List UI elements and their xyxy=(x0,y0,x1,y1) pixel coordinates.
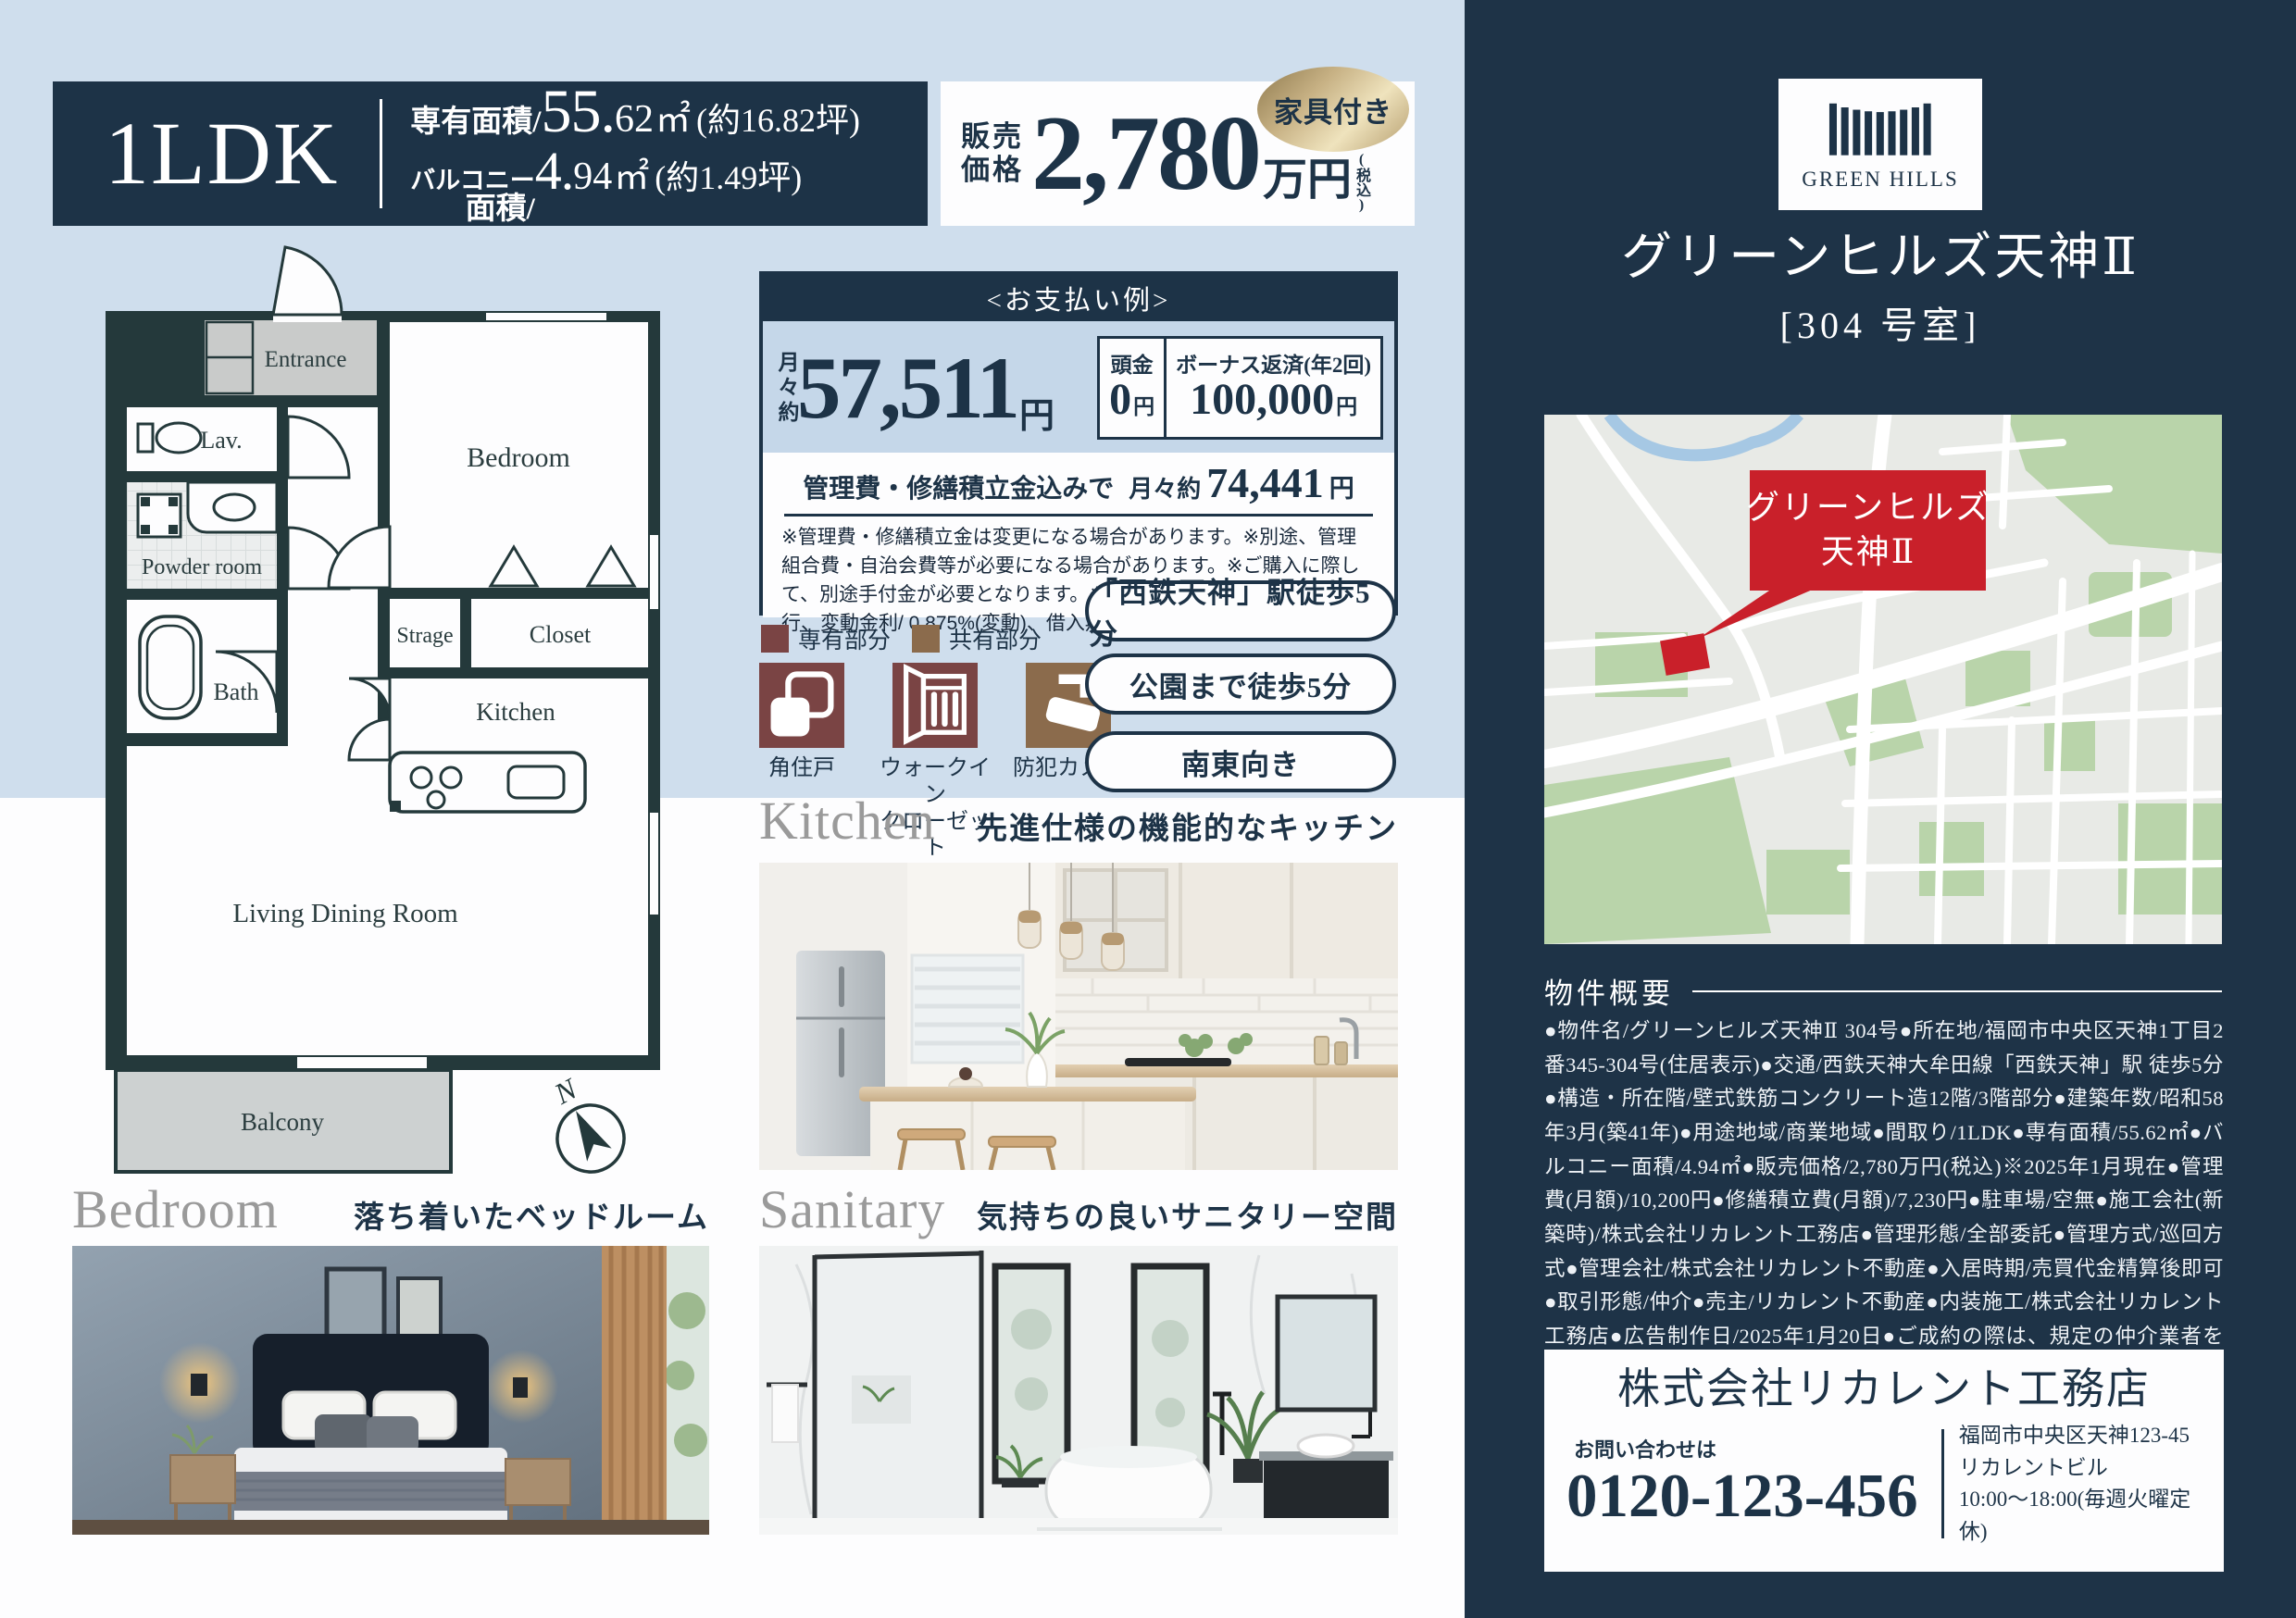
furnished-badge: 家具付き xyxy=(1257,67,1409,152)
bedroom-heading-ja: 落ち着いたベッドルーム xyxy=(354,1192,709,1237)
logo-text: GREEN HILLS xyxy=(1802,168,1959,192)
sidebar: GREEN HILLS グリーンヒルズ天神Ⅱ [304 号室] xyxy=(1465,0,2296,1618)
bedroom-heading: Bedroom 落ち着いたベッドルーム xyxy=(72,1183,709,1237)
sanitary-heading-ja: 気持ちの良いサニタリー空間 xyxy=(977,1192,1398,1237)
incl-rule xyxy=(784,514,1373,517)
company-name: 株式会社リカレント工務店 xyxy=(1544,1368,2224,1411)
price-unit: 万円 xyxy=(1263,143,1352,207)
incl-label: 管理費・修繕積立金込みで xyxy=(803,477,1114,503)
monthly-value: 57,511 xyxy=(797,344,1017,432)
bedroom-photo xyxy=(72,1246,709,1535)
incl-prefix: 月々約 xyxy=(1129,478,1201,502)
contact-divider xyxy=(1941,1429,1944,1538)
sanitary-heading: Sanitary 気持ちの良いサニタリー空間 xyxy=(759,1183,1398,1237)
overview-title: 物件概要 xyxy=(1544,970,1674,1012)
balcony-unit: ㎡ xyxy=(614,160,649,195)
brand-logo: GREEN HILLS xyxy=(1778,79,1982,210)
payment-example-box: <お支払い例> 月々約 57,511 円 頭金 0 円 ボーナス返済(年2回) … xyxy=(759,271,1398,616)
monthly-prefix: 月々約 xyxy=(776,351,797,426)
real-estate-flyer: 1LDK 専有面積/ 55. 62 ㎡ (約16.82坪) バルコニー 面積/ … xyxy=(0,0,2296,1618)
inquiry-label: お問い合わせは xyxy=(1574,1440,1938,1461)
badge-station: 「西鉄天神」駅徒歩5分 xyxy=(1085,580,1396,641)
kitchen-heading-ja: 先進仕様の機能的なキッチン xyxy=(977,803,1398,848)
overview-heading: 物件概要 xyxy=(1544,970,2222,1012)
sanitary-photo xyxy=(759,1246,1398,1535)
plan-type: 1LDK xyxy=(105,109,339,198)
exclusive-color-swatch xyxy=(761,625,789,653)
bedroom-heading-en: Bedroom xyxy=(72,1183,279,1237)
area-unit: ㎡ xyxy=(655,103,691,138)
downpayment-value: 0 xyxy=(1109,378,1131,422)
price-value: 2,780 xyxy=(1031,100,1259,207)
kitchen-heading: Kitchen 先進仕様の機能的なキッチン xyxy=(759,794,1398,848)
bonus-value: 100,000 xyxy=(1190,378,1334,422)
map-callout-line2: 天神Ⅱ xyxy=(1821,533,1915,570)
balcony-int: 4. xyxy=(535,144,574,198)
balcony-label-1: バルコニー xyxy=(410,168,534,193)
balcony-dec: 94 xyxy=(573,157,612,196)
area-int: 55. xyxy=(541,81,615,143)
badge-park: 公園まで徒歩5分 xyxy=(1085,653,1396,715)
room-number: [304 号室] xyxy=(1465,307,2296,344)
building-title: グリーンヒルズ天神Ⅱ xyxy=(1465,231,2296,282)
downpayment-bonus-box: 頭金 0 円 ボーナス返済(年2回) 100,000 円 xyxy=(1097,336,1383,440)
location-map: グリーンヒルズ 天神Ⅱ xyxy=(1544,415,2222,944)
room-label-closet: Closet xyxy=(530,621,592,648)
contact-box: 株式会社リカレント工務店 お問い合わせは 0120-123-456 福岡市中央区… xyxy=(1544,1350,2224,1572)
feature-corner-unit: 角住戸 xyxy=(739,663,865,782)
map-callout-line1: グリーンヒルズ xyxy=(1746,489,1990,526)
toilet-icon xyxy=(138,423,201,453)
sanitary-heading-en: Sanitary xyxy=(759,1183,945,1237)
room-label-kitchen: Kitchen xyxy=(476,698,555,726)
contact-address-1: 福岡市中央区天神123-45 xyxy=(1959,1420,2202,1452)
room-label-bath: Bath xyxy=(213,678,258,705)
kitchen-photo xyxy=(759,863,1398,1170)
incl-value: 74,441 xyxy=(1206,462,1324,504)
bathtub-icon xyxy=(140,616,201,718)
room-label-lav: Lav. xyxy=(200,427,242,454)
exclusive-area-row: 専有面積/ 55. 62 ㎡ (約16.82坪) xyxy=(410,81,860,143)
area-tsubo: (約16.82坪) xyxy=(696,104,860,137)
shoe-cabinet xyxy=(206,322,253,393)
kitchen-counter xyxy=(390,753,585,812)
compass-icon: N xyxy=(529,1061,636,1184)
room-label-balcony: Balcony xyxy=(241,1108,324,1136)
logo-bars-icon xyxy=(1811,97,1950,164)
area-label: 専有面積/ xyxy=(410,107,541,138)
badge-facing: 南東向き xyxy=(1085,731,1396,792)
plan-header: 1LDK 専有面積/ 55. 62 ㎡ (約16.82坪) バルコニー 面積/ … xyxy=(53,81,928,226)
room-label-strage: Strage xyxy=(396,624,453,648)
contact-address-2: リカレントビル xyxy=(1959,1452,2202,1485)
payment-title: <お支払い例> xyxy=(763,275,1394,321)
walk-in-closet-icon xyxy=(892,663,978,748)
room-label-bedroom: Bedroom xyxy=(467,442,570,473)
room-label-powder: Powder room xyxy=(142,555,262,579)
incl-unit: 円 xyxy=(1329,477,1354,502)
balcony-area-row: バルコニー 面積/ 4. 94 ㎡ (約1.49坪) xyxy=(410,144,860,226)
corner-unit-icon xyxy=(759,663,844,748)
area-dec: 62 xyxy=(615,100,654,139)
floor-plan: N Entrance Lav. Powder room Bath Bedroom… xyxy=(97,239,680,1192)
legend-exclusive: 専有部分 xyxy=(761,622,891,655)
header-divider xyxy=(380,99,382,208)
legend-shared: 共有部分 xyxy=(912,622,1042,655)
room-label-entrance: Entrance xyxy=(265,347,347,372)
monthly-unit: 円 xyxy=(1019,387,1054,438)
price-tax-note: (税込) xyxy=(1354,152,1368,213)
downpayment-label: 頭金 xyxy=(1111,354,1154,377)
balcony-tsubo: (約1.49坪) xyxy=(655,161,802,194)
contact-hours: 10:00〜18:00(毎週火曜定休) xyxy=(1959,1484,2202,1548)
svg-text:N: N xyxy=(548,1071,583,1111)
price-label-1: 販売 xyxy=(961,120,1024,154)
room-label-ldk: Living Dining Room xyxy=(232,899,458,928)
price-label-2: 価格 xyxy=(961,154,1024,187)
overview-text: ●物件名/グリーンヒルズ天神Ⅱ 304号●所在地/福岡市中央区天神1丁目2番34… xyxy=(1544,1014,2224,1388)
bonus-label: ボーナス返済(年2回) xyxy=(1176,354,1371,377)
balcony-label-2: 面積/ xyxy=(466,193,535,226)
overview-rule xyxy=(1692,990,2222,992)
shared-color-swatch xyxy=(912,625,940,653)
downpayment-unit: 円 xyxy=(1133,396,1154,417)
kitchen-heading-en: Kitchen xyxy=(759,794,936,848)
bonus-unit: 円 xyxy=(1336,396,1357,417)
entrance-door-arc xyxy=(273,247,342,315)
phone-number: 0120-123-456 xyxy=(1566,1462,1938,1531)
